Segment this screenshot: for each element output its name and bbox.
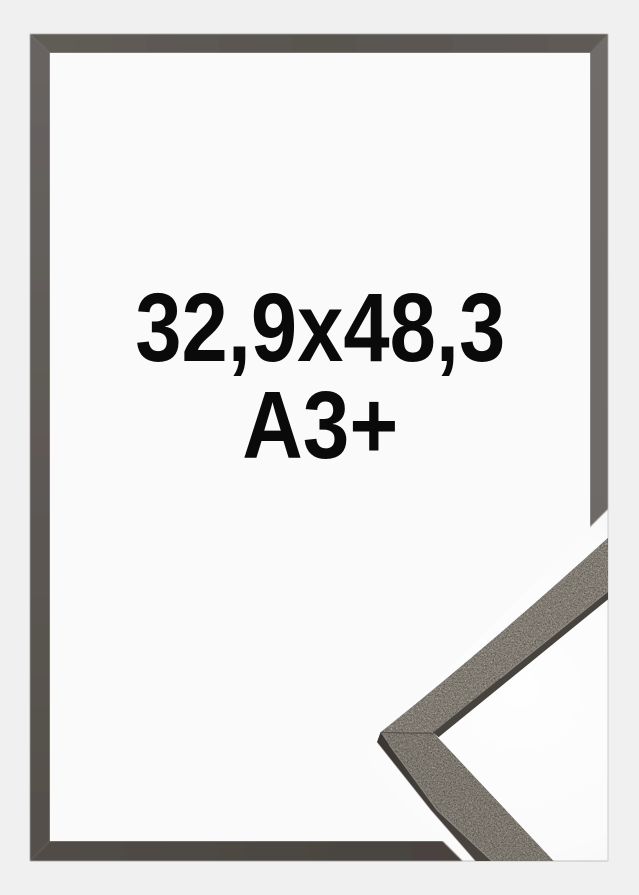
svg-text:32,9x48,3: 32,9x48,3 <box>135 273 505 382</box>
svg-text:A3+: A3+ <box>242 372 398 479</box>
